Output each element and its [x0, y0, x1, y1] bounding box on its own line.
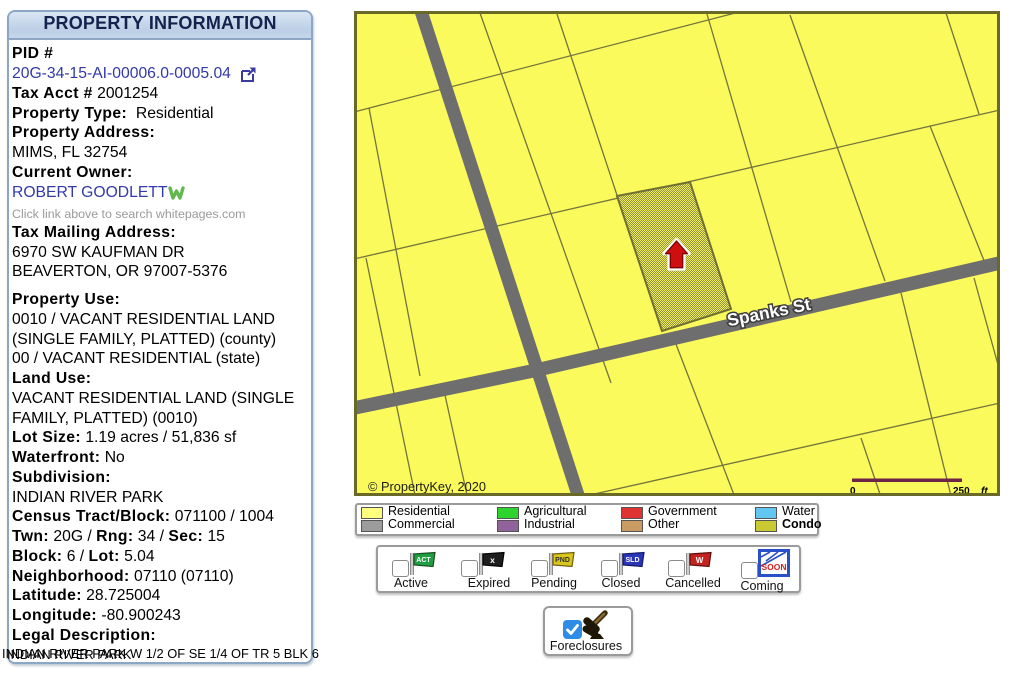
svg-text:x: x — [490, 555, 495, 565]
svg-text:ACT: ACT — [416, 557, 431, 564]
svg-text:PND: PND — [555, 557, 570, 564]
svg-text:SOON: SOON — [761, 562, 786, 572]
svg-text:W: W — [696, 556, 704, 565]
svg-text:SLD: SLD — [626, 557, 640, 564]
svg-text:© PropertyKey, 2020: © PropertyKey, 2020 — [368, 479, 486, 494]
